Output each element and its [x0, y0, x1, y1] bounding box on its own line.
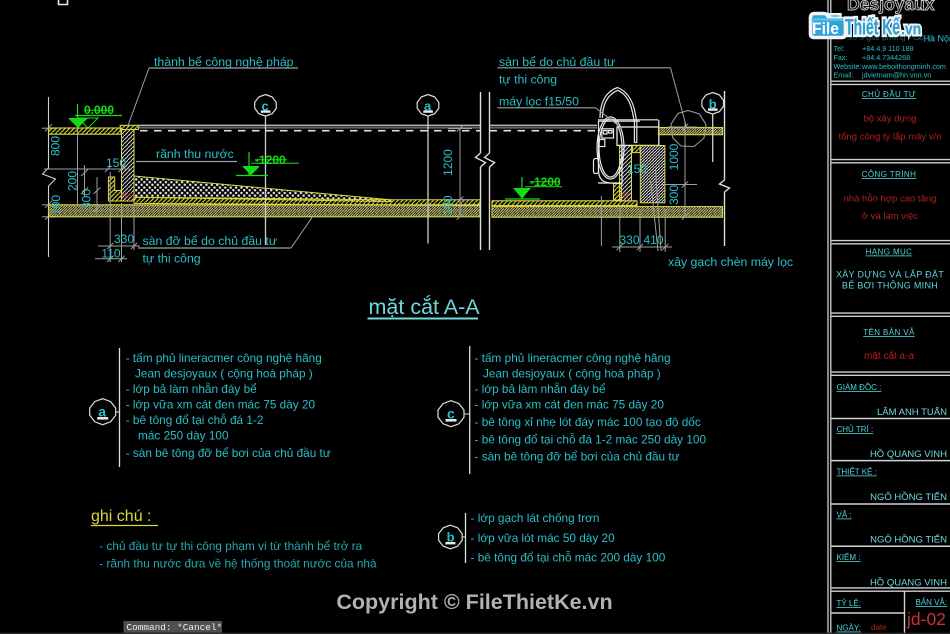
svg-text:- bê tông đổ tại chỗ đá 1-2: - bê tông đổ tại chỗ đá 1-2 — [126, 413, 264, 427]
svg-text:sàn đỡ bể do chủ đầu tư: sàn đỡ bể do chủ đầu tư — [143, 234, 278, 248]
svg-text:máy lọc f15/50: máy lọc f15/50 — [499, 95, 579, 109]
svg-text:mác 250 dày 100: mác 250 dày 100 — [138, 428, 229, 442]
svg-text:- lớp vữa xm cát đen mác 75 dà: - lớp vữa xm cát đen mác 75 dày 20 — [126, 398, 316, 412]
svg-text:330: 330 — [114, 232, 134, 246]
svg-text:TỶ LỆ:: TỶ LỆ: — [837, 599, 861, 608]
svg-text:ở và làm việc: ở và làm việc — [862, 211, 919, 222]
svg-text:1200: 1200 — [441, 149, 455, 176]
svg-text:BỂ BƠI THÔNG MINH: BỂ BƠI THÔNG MINH — [842, 280, 938, 291]
svg-text:- sàn bê tông đỡ bể bơi của ch: - sàn bê tông đỡ bể bơi của chủ đầu tư — [126, 446, 331, 460]
svg-text:File: File — [812, 19, 839, 38]
svg-text:CHỦ TRÌ :: CHỦ TRÌ : — [837, 425, 874, 434]
svg-text:Thiết Kế: Thiết Kế — [845, 14, 900, 39]
svg-text:CÔNG TRÌNH: CÔNG TRÌNH — [862, 170, 917, 179]
svg-text:- chủ đầu tư tự thi công phạm: - chủ đầu tư tự thi công phạm vi từ thàn… — [99, 539, 362, 553]
svg-text:700: 700 — [49, 195, 63, 215]
svg-text:mặt cắt A-A: mặt cắt A-A — [369, 294, 481, 319]
svg-text:- lớp gạch lát chống trơn: - lớp gạch lát chống trơn — [471, 511, 600, 525]
svg-text:mặt cắt a-a: mặt cắt a-a — [864, 349, 914, 362]
svg-text:Tel:: Tel: — [834, 44, 845, 53]
svg-text:1000: 1000 — [667, 143, 681, 170]
svg-text:jd-02: jd-02 — [906, 609, 946, 629]
svg-text:sàn bể do chủ đầu tư: sàn bể do chủ đầu tư — [499, 55, 615, 69]
svg-text:HỒ QUANG VINH: HỒ QUANG VINH — [870, 577, 947, 589]
svg-text:150: 150 — [627, 162, 647, 176]
svg-text:bộ xây dựng: bộ xây dựng — [864, 114, 917, 125]
svg-text:BẢN VẴ:: BẢN VẴ: — [916, 598, 948, 607]
svg-text:- sàn bê tông đỡ bể bơi của ch: - sàn bê tông đỡ bể bơi của chủ đầu tư — [475, 450, 680, 464]
svg-text:+84.4.7344268: +84.4.7344268 — [862, 53, 910, 62]
svg-text:LÂM ANH TUẤN: LÂM ANH TUẤN — [877, 407, 947, 418]
svg-text:HỒ QUANG VINH: HỒ QUANG VINH — [870, 448, 947, 460]
svg-text:tự thi công: tự thi công — [499, 73, 557, 87]
svg-text:- rãnh thu nước đưa về hệ thốn: - rãnh thu nước đưa về hệ thống thoát nư… — [99, 557, 377, 571]
svg-text:ghi chú :: ghi chú : — [91, 508, 151, 525]
svg-text:tổng công ty lắp máy v/n: tổng công ty lắp máy v/n — [839, 132, 942, 143]
svg-text:GIÁM ĐỒC :: GIÁM ĐỒC : — [837, 382, 882, 392]
svg-text:- lớp vữa xm cát đen mác 75 dà: - lớp vữa xm cát đen mác 75 dày 20 — [475, 398, 665, 412]
svg-text:- bê tông xỉ nhẹ lót đáy mác 1: - bê tông xỉ nhẹ lót đáy mác 100 tạo độ … — [475, 415, 701, 429]
svg-text:TÊN BẢN VẴ: TÊN BẢN VẴ — [863, 328, 915, 337]
svg-text:XÂY DỰNG VÀ LẮP ĐẶT: XÂY DỰNG VÀ LẮP ĐẶT — [836, 270, 944, 280]
svg-text:Email:: Email: — [834, 71, 854, 80]
svg-text:- bê tông đổ tại chỗ mác 200 d: - bê tông đổ tại chỗ mác 200 dày 100 — [471, 551, 666, 565]
svg-text:date: date — [871, 623, 887, 632]
svg-text:NGÔ HỒNG TIẾN: NGÔ HỒNG TIẾN — [870, 534, 947, 546]
svg-text:CHỦ ĐẦU TƯ: CHỦ ĐẦU TƯ — [862, 89, 916, 99]
svg-text:nhà hỗn hợp cao tầng: nhà hỗn hợp cao tầng — [844, 194, 937, 205]
svg-text:jdvietnam@hn.vnn.vn: jdvietnam@hn.vnn.vn — [861, 71, 931, 80]
svg-text:- lớp bả làm nhẵn đáy bể: - lớp bả làm nhẵn đáy bể — [126, 382, 257, 396]
svg-text:NGÔ HỒNG TIẾN: NGÔ HỒNG TIẾN — [870, 491, 947, 503]
svg-text:- lớp vữa lót mác 50 dày 20: - lớp vữa lót mác 50 dày 20 — [471, 531, 616, 545]
svg-text:.vn: .vn — [901, 20, 921, 38]
svg-text:Fax:: Fax: — [834, 53, 848, 62]
svg-text:- bê tông đổ tại chỗ đá 1-2 má: - bê tông đổ tại chỗ đá 1-2 mác 250 dày … — [475, 433, 707, 447]
svg-text:100: 100 — [441, 195, 455, 215]
svg-text:110: 110 — [101, 247, 120, 261]
svg-text:- lớp bả làm nhẵn đáy bể: - lớp bả làm nhẵn đáy bể — [475, 382, 606, 396]
svg-text:Desjoyaux: Desjoyaux — [847, 0, 935, 14]
svg-text:Jean desjoyaux ( cộng hoà pháp: Jean desjoyaux ( cộng hoà pháp ) — [483, 367, 661, 381]
svg-text:KIỂM :: KIỂM : — [837, 553, 861, 562]
svg-text:THIẾT KẾ :: THIẾT KẾ : — [837, 467, 877, 477]
svg-text:300: 300 — [667, 185, 681, 205]
svg-text:xây gạch chèn máy lọc: xây gạch chèn máy lọc — [668, 255, 793, 269]
svg-text:300: 300 — [80, 189, 94, 209]
svg-text:thành bể công nghệ pháp: thành bể công nghệ pháp — [154, 55, 294, 69]
svg-text:800: 800 — [49, 136, 63, 156]
svg-text:+84.4.9 110 188: +84.4.9 110 188 — [862, 44, 914, 53]
svg-text:- tấm phủ lineracmer công nghệ: - tấm phủ lineracmer công nghệ hãng — [475, 351, 671, 365]
svg-text:Copyright © FileThietKe.vn: Copyright © FileThietKe.vn — [336, 590, 612, 614]
svg-text:rãnh thu nước: rãnh thu nước — [156, 147, 234, 161]
svg-text:- tấm phủ lineracmer công nghệ: - tấm phủ lineracmer công nghệ hãng — [126, 351, 322, 365]
svg-text:NGÀY:: NGÀY: — [837, 624, 861, 633]
svg-text:Jean desjoyaux ( cộng hoà pháp: Jean desjoyaux ( cộng hoà pháp ) — [135, 367, 313, 381]
svg-text:HẠNG MỤC: HẠNG MỤC — [866, 248, 913, 257]
svg-text:Command: *Cancel*: Command: *Cancel* — [127, 622, 223, 633]
svg-text:330: 330 — [619, 233, 639, 247]
svg-text:VẴ :: VẴ : — [837, 511, 852, 520]
svg-text:tự thi công: tự thi công — [143, 252, 201, 266]
